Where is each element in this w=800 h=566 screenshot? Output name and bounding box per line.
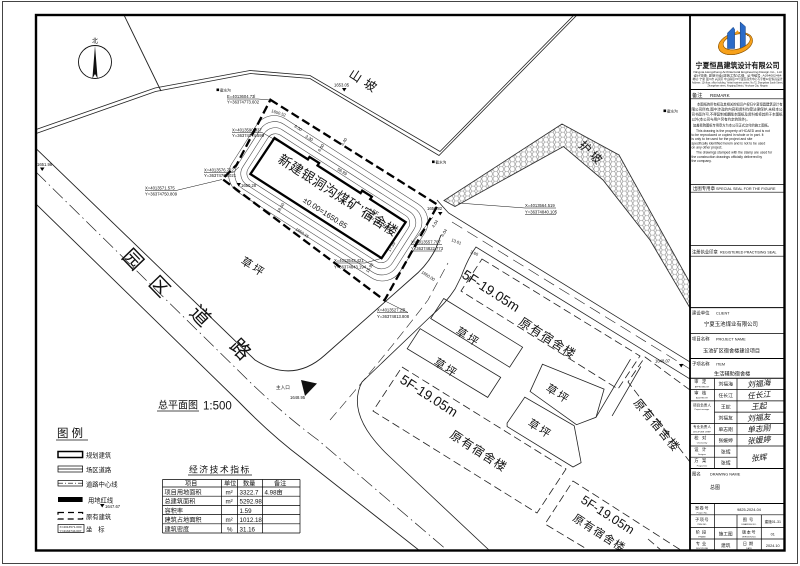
svg-text:3322.7: 3322.7 <box>240 490 259 497</box>
svg-text:DISCIPLINE CHIEF: DISCIPLINE CHIEF <box>693 431 711 433</box>
svg-text:以外(本公司与用户另有约定的除外)。: 以外(本公司与用户另有约定的除外)。 <box>692 117 750 122</box>
svg-text:SPECIAL SEAL FOR THE FIGURE: SPECIAL SEAL FOR THE FIGURE <box>716 187 776 191</box>
svg-text:9825-2024-04: 9825-2024-04 <box>737 508 761 512</box>
svg-text:1653.05: 1653.05 <box>334 83 350 88</box>
svg-text:原有建筑: 原有建筑 <box>86 512 112 521</box>
svg-text:建筑: 建筑 <box>721 542 731 549</box>
svg-text:AUDITED BY: AUDITED BY <box>696 397 709 400</box>
svg-text:北: 北 <box>92 37 98 45</box>
svg-text:单位: 单位 <box>224 480 236 488</box>
svg-text:子项名称: 子项名称 <box>692 361 710 368</box>
svg-text:限公司所有,图中涉及的内容和资料均受法律保护,未经本公: 限公司所有,图中涉及的内容和资料均受法律保护,未经本公 <box>692 107 783 112</box>
svg-text:生活辅助宿舍楼: 生活辅助宿舍楼 <box>714 370 750 378</box>
svg-text:建筑密度: 建筑密度 <box>165 525 190 533</box>
svg-text:REGISTERED PRACTISING SEAL: REGISTERED PRACTISING SEAL <box>720 250 777 254</box>
svg-text:Designer: Designer <box>698 454 706 456</box>
svg-text:Y=36374374.599: Y=36374374.599 <box>232 133 265 138</box>
svg-text:案卷号: 案卷号 <box>695 505 709 512</box>
svg-text:道路中心线: 道路中心线 <box>86 480 118 489</box>
svg-text:阶段: 阶段 <box>696 529 708 536</box>
svg-text:单志刚: 单志刚 <box>718 426 733 433</box>
svg-text:PROJECT NAME: PROJECT NAME <box>716 337 746 341</box>
svg-text:王起: 王起 <box>751 401 769 411</box>
svg-text:专业: 专业 <box>696 540 708 547</box>
svg-text:REMARK: REMARK <box>710 93 731 98</box>
svg-text:主入口: 主入口 <box>276 384 290 391</box>
svg-text:X=4013576.722: X=4013576.722 <box>204 168 234 173</box>
svg-text:X=4013543.421: X=4013543.421 <box>334 258 364 263</box>
svg-text:1647.67: 1647.67 <box>105 504 121 509</box>
svg-text:m²: m² <box>226 499 233 506</box>
svg-text:2024.10: 2024.10 <box>766 544 780 548</box>
svg-text:DRAWING NAME: DRAWING NAME <box>710 472 741 476</box>
svg-text:出图专用章: 出图专用章 <box>693 185 716 192</box>
svg-text:VERSION NO.: VERSION NO. <box>742 537 757 539</box>
svg-text:本图纸的所有权及其相关的知识产权归宁夏恒昌建筑设计有: 本图纸的所有权及其相关的知识产权归宁夏恒昌建筑设计有 <box>697 102 783 107</box>
svg-text:Y=36374765.021: Y=36374765.021 <box>204 173 237 178</box>
svg-text:张媛婷: 张媛婷 <box>718 437 733 444</box>
svg-text:建施01-31: 建施01-31 <box>765 519 781 524</box>
svg-text:Ningxia Hengchang Architectura: Ningxia Hengchang Architectural Engineer… <box>694 70 783 74</box>
svg-text:1:500: 1:500 <box>203 401 232 413</box>
svg-text:玉池矿区宿舍楼建设项目: 玉池矿区宿舍楼建设项目 <box>703 347 760 355</box>
svg-text:施工图: 施工图 <box>719 531 733 538</box>
svg-text:总图: 总图 <box>710 484 720 491</box>
svg-text:建设单位: 建设单位 <box>692 310 710 317</box>
svg-text:m²: m² <box>226 490 233 497</box>
svg-text:m²: m² <box>226 517 233 524</box>
svg-text:项目用地面积: 项目用地面积 <box>165 489 202 497</box>
svg-text:宁夏恒昌建筑设计有限公司: 宁夏恒昌建筑设计有限公司 <box>696 61 780 70</box>
svg-text:图名: 图名 <box>692 471 701 478</box>
svg-text:审定: 审定 <box>694 378 710 385</box>
svg-text:ITEM: ITEM <box>716 362 725 366</box>
svg-text:X=4013527.23l: X=4013527.23l <box>377 308 405 313</box>
svg-text:项目负责人: 项目负责人 <box>693 402 711 407</box>
svg-text:31.16: 31.16 <box>240 526 256 533</box>
svg-text:Y=4134744.007: Y=4134744.007 <box>60 529 82 533</box>
svg-text:1651.98: 1651.98 <box>37 162 53 167</box>
svg-text:张辉: 张辉 <box>721 448 731 455</box>
svg-text:总平面图: 总平面图 <box>158 399 198 412</box>
svg-text:设计等级: 建筑行业(建筑工程)乙级 证书编号: A26: 设计等级: 建筑行业(建筑工程)乙级 证书编号: A264002464 <box>694 74 783 78</box>
svg-text:DRAWING NO.: DRAWING NO. <box>742 523 757 526</box>
svg-text:DISCIPLINE: DISCIPLINE <box>696 548 709 550</box>
svg-text:Y=36374773.602: Y=36374773.602 <box>227 100 260 105</box>
svg-text:截水沟: 截水沟 <box>436 160 447 165</box>
svg-text:总建筑面积: 总建筑面积 <box>165 498 196 506</box>
svg-text:Y=36374750.809: Y=36374750.809 <box>145 192 178 197</box>
svg-text:规划建筑: 规划建筑 <box>86 451 112 460</box>
svg-text:1.59: 1.59 <box>240 508 253 515</box>
svg-text:任长江: 任长江 <box>718 392 733 399</box>
svg-text:刘福友: 刘福友 <box>718 415 733 422</box>
svg-text:版本号: 版本号 <box>742 529 756 536</box>
svg-text:1012.18: 1012.18 <box>240 517 263 524</box>
svg-text:地址: 宁夏 银川市 兴庆区 中山南街72号银百商务中心写字: 地址: 宁夏 银川市 兴庆区 中山南街72号银百商务中心写字楼12层恒昌设计 <box>693 77 783 81</box>
svg-text:DATE: DATE <box>746 547 752 550</box>
svg-text:E=4013604.73l: E=4013604.73l <box>227 94 255 99</box>
svg-text:on any other project.: on any other project. <box>692 146 723 150</box>
svg-text:校对: 校对 <box>694 435 710 442</box>
svg-text:X=4013557.707: X=4013557.707 <box>411 240 441 245</box>
svg-text:Y=36374822.773: Y=36374822.773 <box>411 246 444 251</box>
svg-text:Y=36374840.105: Y=36374840.105 <box>525 210 558 215</box>
svg-text:图例: 图例 <box>57 426 86 440</box>
svg-text:注册执业印章: 注册执业印章 <box>692 249 718 256</box>
svg-text:容积率: 容积率 <box>165 507 184 515</box>
svg-text:APPROVED BY: APPROVED BY <box>695 385 710 388</box>
svg-text:X=4013564.519: X=4013564.519 <box>525 203 555 208</box>
svg-text:1650.28: 1650.28 <box>241 183 257 188</box>
svg-text:项目: 项目 <box>185 481 197 488</box>
svg-text:数量: 数量 <box>243 480 255 488</box>
svg-text:子项号: 子项号 <box>695 516 709 523</box>
svg-text:CLIENT: CLIENT <box>716 311 730 315</box>
svg-text:1648.95: 1648.95 <box>290 395 306 400</box>
svg-text:方案: 方案 <box>694 457 710 464</box>
svg-text:备注: 备注 <box>274 480 286 488</box>
svg-text:设计: 设计 <box>694 446 710 453</box>
svg-text:建筑占地面积: 建筑占地面积 <box>165 516 202 524</box>
svg-text:X=4013590.937: X=4013590.937 <box>232 128 262 133</box>
svg-text:1650.82: 1650.82 <box>427 206 443 211</box>
svg-text:加盖我院图纸专用章方为本公司正式交付的施工图纸。: 加盖我院图纸专用章方为本公司正式交付的施工图纸。 <box>693 122 771 127</box>
svg-text:司书面许可,不得复制或翻版本图纸及资料或将其用于本图纸: 司书面许可,不得复制或翻版本图纸及资料或将其用于本图纸 <box>692 112 783 117</box>
svg-text:Programme: Programme <box>697 465 708 467</box>
svg-text:the company.: the company. <box>692 159 712 163</box>
svg-text:%: % <box>227 526 233 533</box>
svg-text:Project No.: Project No. <box>697 511 708 514</box>
svg-text:Project manager: Project manager <box>695 408 710 411</box>
svg-text:宁夏玉池煤业有限公司: 宁夏玉池煤业有限公司 <box>704 320 758 328</box>
svg-text:ITEM NO.: ITEM NO. <box>697 524 707 526</box>
svg-text:张辉: 张辉 <box>721 460 731 467</box>
svg-text:X=4013571.575: X=4013571.575 <box>145 186 175 191</box>
svg-text:截水沟: 截水沟 <box>667 109 678 114</box>
svg-text:项目名称: 项目名称 <box>692 336 710 343</box>
svg-text:Y=36374843.194: Y=36374843.194 <box>334 265 367 270</box>
svg-text:Zhongshan street, Xingqing Dis: Zhongshan street, Xingqing District, Yin… <box>708 85 769 88</box>
svg-text:张辉: 张辉 <box>751 453 769 463</box>
svg-text:4.98亩: 4.98亩 <box>265 489 283 497</box>
svg-text:经济技术指标: 经济技术指标 <box>189 464 251 475</box>
svg-text:1648.07: 1648.07 <box>655 359 671 364</box>
svg-text:刘福海: 刘福海 <box>718 381 733 388</box>
svg-text:用地红线: 用地红线 <box>88 496 114 505</box>
svg-text:Y=36374813.808: Y=36374813.808 <box>377 314 410 319</box>
svg-text:场区道路: 场区道路 <box>86 465 112 474</box>
svg-text:王蛇: 王蛇 <box>721 403 731 410</box>
svg-text:坐标: 坐标 <box>86 525 111 534</box>
svg-text:Checked by: Checked by <box>697 443 708 445</box>
svg-text:截水沟: 截水沟 <box>220 88 231 93</box>
svg-text:专业负责人: 专业负责人 <box>693 424 711 429</box>
svg-text:PHASE: PHASE <box>698 536 706 539</box>
svg-text:01: 01 <box>771 533 775 537</box>
svg-text:审核: 审核 <box>694 389 710 396</box>
svg-text:备注: 备注 <box>692 91 702 99</box>
svg-text:5292.98: 5292.98 <box>240 499 263 506</box>
